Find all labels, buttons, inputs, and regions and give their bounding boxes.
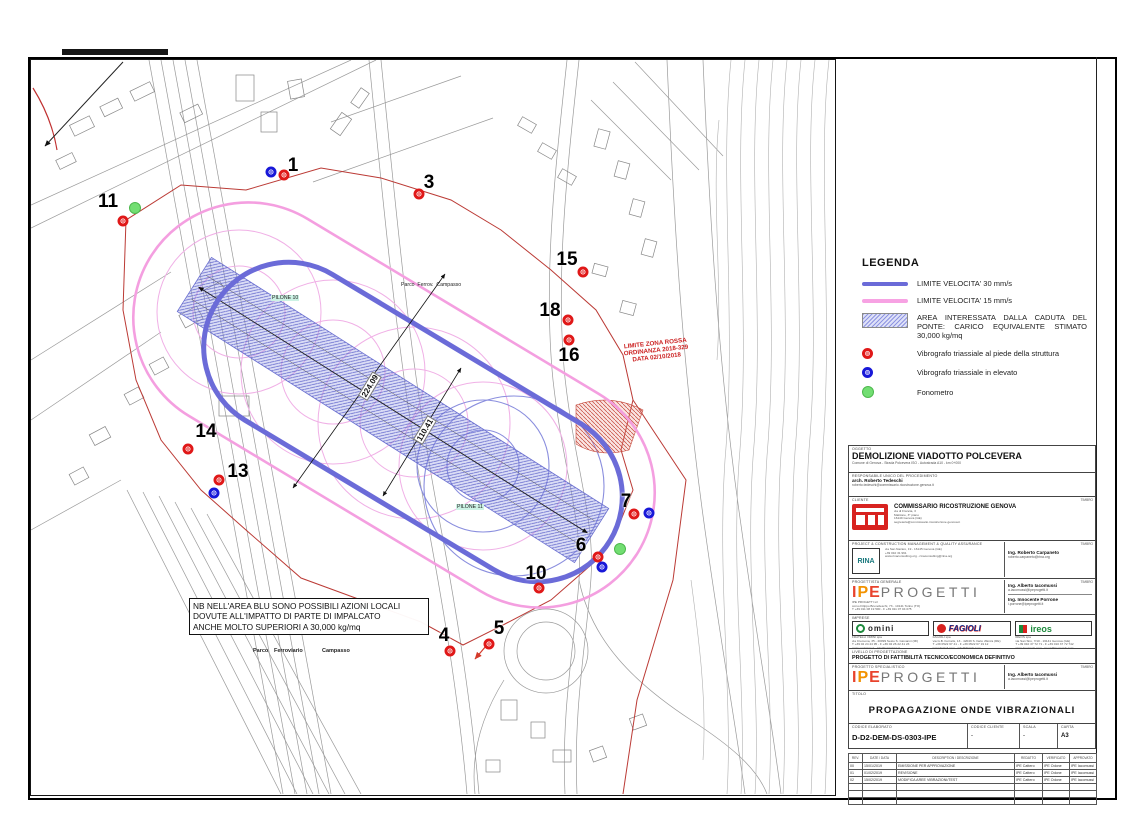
- legend-item: Vibrografo triassiale in elevato: [862, 367, 1092, 378]
- timbro-label: TIMBRO: [1081, 580, 1093, 584]
- legend-label: LIMITE VELOCITA' 15 mm/s: [917, 296, 1087, 305]
- hatched-area-swatch: [862, 313, 908, 328]
- legend-label: LIMITE VELOCITA' 30 mm/s: [917, 279, 1087, 288]
- legend-item: AREA INTERESSATA DALLA CADUTA DEL PONTE:…: [862, 313, 1092, 340]
- legend-label: Vibrografo triassiale al piede della str…: [917, 349, 1087, 358]
- vibrograph-red-marker: [183, 444, 194, 455]
- revision-cell: IPE Iacomussi: [1070, 770, 1097, 777]
- revision-cell: [1070, 784, 1097, 791]
- ipe-line: T +39 011 08 19 500 - F +39 011 07 04 07…: [852, 608, 1004, 612]
- point-number: 13: [227, 461, 248, 483]
- revision-cell: [897, 798, 1015, 805]
- revision-cell: [1015, 798, 1043, 805]
- point-number: 14: [195, 421, 216, 443]
- vibrograph-red-marker: [578, 267, 589, 278]
- point-number: 6: [576, 535, 587, 557]
- timbro-label: TIMBRO: [1081, 498, 1093, 502]
- revision-cell: IPE Odone: [1043, 770, 1070, 777]
- title-block: OGGETTO DEMOLIZIONE VIADOTTO POLCEVERA C…: [848, 445, 1096, 749]
- blue-line-swatch: [862, 282, 908, 286]
- revision-header: REV.: [849, 754, 863, 763]
- rup-email: roberto.tedeschi@commissario.ricostruzio…: [852, 483, 1092, 487]
- legend-label: Vibrografo triassiale in elevato: [917, 368, 1087, 377]
- corner-strip: [62, 49, 168, 55]
- cliente-addr-line: segreteria@commissario.ricostruzione.gen…: [894, 521, 1016, 525]
- revision-cell: [1015, 784, 1043, 791]
- pg-engineer-1-email: a.iacomussi@ipeprogetti.it: [1008, 588, 1092, 595]
- revision-cell: IPE Odone: [1043, 763, 1070, 770]
- revision-header: DESCRIPTION / DESCRIZIONE: [897, 754, 1015, 763]
- revision-cell: [1070, 798, 1097, 805]
- project-subtitle: Comune di Genova - Strada Polcevera ISO …: [852, 461, 1092, 465]
- revision-header-row: REV.DATE / DATADESCRIPTION / DESCRIZIONE…: [849, 754, 1097, 763]
- revision-cell: [1043, 791, 1070, 798]
- vibrograph-blue-marker: [597, 562, 608, 573]
- revision-header: DATE / DATA: [863, 754, 897, 763]
- vibrograph-blue-marker: [266, 167, 277, 178]
- carta-value: A3: [1061, 733, 1092, 739]
- revision-cell: [863, 798, 897, 805]
- titleblock-progettista-row: PROGETTISTA GENERALE IPEPROGETTI IPE PRO…: [848, 579, 1096, 615]
- point-number: 3: [424, 172, 435, 194]
- legend: LEGENDA LIMITE VELOCITA' 30 mm/s LIMITE …: [862, 257, 1092, 406]
- phonometer-marker: [129, 202, 141, 214]
- point-number: 7: [621, 491, 632, 513]
- titleblock-rup-row: RESPONSABILE UNICO DEL PROCEDIMENTO arch…: [848, 473, 1096, 497]
- point-number: 11: [98, 191, 118, 213]
- legend-label: AREA INTERESSATA DALLA CADUTA DEL PONTE:…: [917, 313, 1087, 340]
- rina-engineer-email: roberto.carpaneto@rina.org: [1008, 555, 1092, 559]
- revision-cell: IPE Cattero: [1015, 777, 1043, 784]
- red-vibrograph-icon: [862, 348, 908, 359]
- legend-item: Vibrografo triassiale al piede della str…: [862, 348, 1092, 359]
- sheet-margin-line: [1096, 57, 1097, 800]
- rina-logo: RINA: [852, 548, 880, 574]
- pcm-label: PROJECT & CONSTRUCTION MANAGEMENT & QUAL…: [852, 542, 1004, 546]
- vibrograph-red-marker: [214, 475, 225, 486]
- ipe-progetti-logo: IPEPROGETTI: [852, 584, 1004, 601]
- revision-cell: MODIFICA AREE VIBRAZIONI/TEST: [897, 777, 1015, 784]
- revision-table: REV.DATE / DATADESCRIPTION / DESCRIZIONE…: [848, 753, 1097, 805]
- point-number: 5: [494, 618, 505, 640]
- revision-cell: [849, 791, 863, 798]
- point-number: 1: [288, 155, 299, 177]
- pink-line-swatch: [862, 299, 908, 303]
- imprese-label: IMPRESE: [852, 616, 1092, 620]
- revision-cell: IPE Cattero: [1015, 763, 1043, 770]
- revision-cell: [863, 784, 897, 791]
- codice-label: CODICE ELABORATO: [852, 725, 964, 729]
- revision-cell: 00: [849, 763, 863, 770]
- revision-cell: [1043, 784, 1070, 791]
- livello-value: PROGETTO DI FATTIBILITÀ TECNICO/ECONOMIC…: [852, 655, 1092, 661]
- titolo-label: TITOLO: [852, 692, 1092, 696]
- revision-cell: IPE Cattero: [1015, 770, 1043, 777]
- codice-cliente-label: CODICE CLIENTE: [971, 725, 1016, 729]
- vibrograph-red-marker: [445, 646, 456, 657]
- vibrograph-red-marker: [118, 216, 129, 227]
- titleblock-specialistico-row: PROGETTO SPECIALISTICO IPEPROGETTI Ing. …: [848, 664, 1096, 691]
- point-number: 15: [556, 249, 577, 271]
- phonometer-marker: [614, 543, 626, 555]
- revision-cell: [1015, 791, 1043, 798]
- revision-cell: [1043, 798, 1070, 805]
- point-number: 4: [439, 625, 450, 647]
- revision-cell: IPE Iacomussi: [1070, 763, 1097, 770]
- cliente-label: CLIENTE: [852, 498, 1092, 502]
- right-column: LEGENDA LIMITE VELOCITA' 30 mm/s LIMITE …: [846, 59, 1096, 796]
- revision-cell: [897, 791, 1015, 798]
- revision-row: [849, 798, 1097, 805]
- revision-header: VERIFICATO: [1043, 754, 1070, 763]
- vibrograph-red-marker: [484, 639, 495, 650]
- drawing-sheet: NB NELL'AREA BLU SONO POSSIBILI AZIONI L…: [0, 0, 1144, 831]
- titleblock-imprese-row: IMPRESE omini FRATELLI OMINI spa via Cre…: [848, 615, 1096, 649]
- timbro-label: TIMBRO: [1081, 542, 1093, 546]
- revision-cell: 15/01/2019: [863, 763, 897, 770]
- blue-vibrograph-icon: [862, 367, 908, 378]
- revision-header: REDATTO: [1015, 754, 1043, 763]
- point-number: 10: [525, 563, 546, 585]
- revision-cell: 01: [849, 770, 863, 777]
- ireos-logo: ireos: [1015, 621, 1092, 636]
- revision-cell: [863, 791, 897, 798]
- legend-label: Fonometro: [917, 388, 1087, 397]
- point-number: 18: [539, 300, 560, 322]
- revision-cell: [1070, 791, 1097, 798]
- vibrograph-blue-marker: [644, 508, 655, 519]
- revision-cell: IPE Odone: [1043, 777, 1070, 784]
- pg-engineer-2-email: i.porrone@ipeprogetti.it: [1008, 602, 1092, 606]
- revision-cell: IPE Iacomussi: [1070, 777, 1097, 784]
- legend-title: LEGENDA: [862, 257, 1092, 269]
- revision-row: 0101/02/2019REVISIONEIPE CatteroIPE Odon…: [849, 770, 1097, 777]
- legend-item: LIMITE VELOCITA' 15 mm/s: [862, 296, 1092, 305]
- revision-row: 0015/01/2019EMISSIONE PER APPROVAZIONEIP…: [849, 763, 1097, 770]
- revision-cell: [897, 784, 1015, 791]
- revision-cell: EMISSIONE PER APPROVAZIONE: [897, 763, 1015, 770]
- codice-cliente-value: -: [971, 733, 1016, 739]
- titleblock-titolo-row: TITOLO PROPAGAZIONE ONDE VIBRAZIONALI: [848, 691, 1096, 724]
- scala-value: -: [1023, 733, 1054, 739]
- revision-cell: 01/02/2019: [863, 770, 897, 777]
- revision-cell: [849, 798, 863, 805]
- titleblock-livello-row: LIVELLO DI PROGETTAZIONE PROGETTO DI FAT…: [848, 649, 1096, 664]
- project-title: DEMOLIZIONE VIADOTTO POLCEVERA: [852, 451, 1092, 461]
- revision-cell: 15/02/2019: [863, 777, 897, 784]
- livello-label: LIVELLO DI PROGETTAZIONE: [852, 650, 1092, 654]
- revision-cell: [849, 784, 863, 791]
- phonometer-icon: [862, 386, 908, 398]
- revision-row: 0215/02/2019MODIFICA AREE VIBRAZIONI/TES…: [849, 777, 1097, 784]
- timbro-label: TIMBRO: [1081, 665, 1093, 669]
- vibrograph-blue-marker: [209, 488, 220, 499]
- fagioli-logo: FAGIOLI: [933, 621, 1012, 636]
- legend-item: LIMITE VELOCITA' 30 mm/s: [862, 279, 1092, 288]
- legend-item: Fonometro: [862, 386, 1092, 398]
- revision-cell: 02: [849, 777, 863, 784]
- ipe-progetti-logo: IPEPROGETTI: [852, 669, 1004, 686]
- vibrograph-red-marker: [564, 335, 575, 346]
- revision-header: APPROVATO: [1070, 754, 1097, 763]
- spec-engineer-email: a.iacomussi@ipeprogetti.it: [1008, 677, 1092, 681]
- revision-row: [849, 784, 1097, 791]
- titleblock-cliente-row: CLIENTE TIMBRO COMMISSARIO RICOSTRUZIONE…: [848, 497, 1096, 541]
- rina-line: www.rinaconsulting.org - rinaconsulting@…: [885, 555, 952, 559]
- titleblock-pcm-row: PROJECT & CONSTRUCTION MANAGEMENT & QUAL…: [848, 541, 1096, 579]
- titleblock-codice-row: CODICE ELABORATO D-D2-DEM-DS-0303-IPE CO…: [848, 724, 1096, 749]
- titleblock-oggetto-row: OGGETTO DEMOLIZIONE VIADOTTO POLCEVERA C…: [848, 446, 1096, 473]
- point-number: 16: [558, 345, 579, 367]
- drawing-title: PROPAGAZIONE ONDE VIBRAZIONALI: [852, 705, 1092, 716]
- codice-value: D-D2-DEM-DS-0303-IPE: [852, 733, 964, 742]
- revision-cell: REVISIONE: [897, 770, 1015, 777]
- scala-label: SCALA: [1023, 725, 1054, 729]
- vibrograph-red-marker: [563, 315, 574, 326]
- commissario-logo: [852, 504, 888, 530]
- revision-row: [849, 791, 1097, 798]
- measurement-points-layer: 13111518161413761054: [31, 60, 834, 794]
- carta-label: CARTA: [1061, 725, 1092, 729]
- omini-logo: omini: [852, 621, 929, 636]
- map-area: NB NELL'AREA BLU SONO POSSIBILI AZIONI L…: [30, 59, 836, 796]
